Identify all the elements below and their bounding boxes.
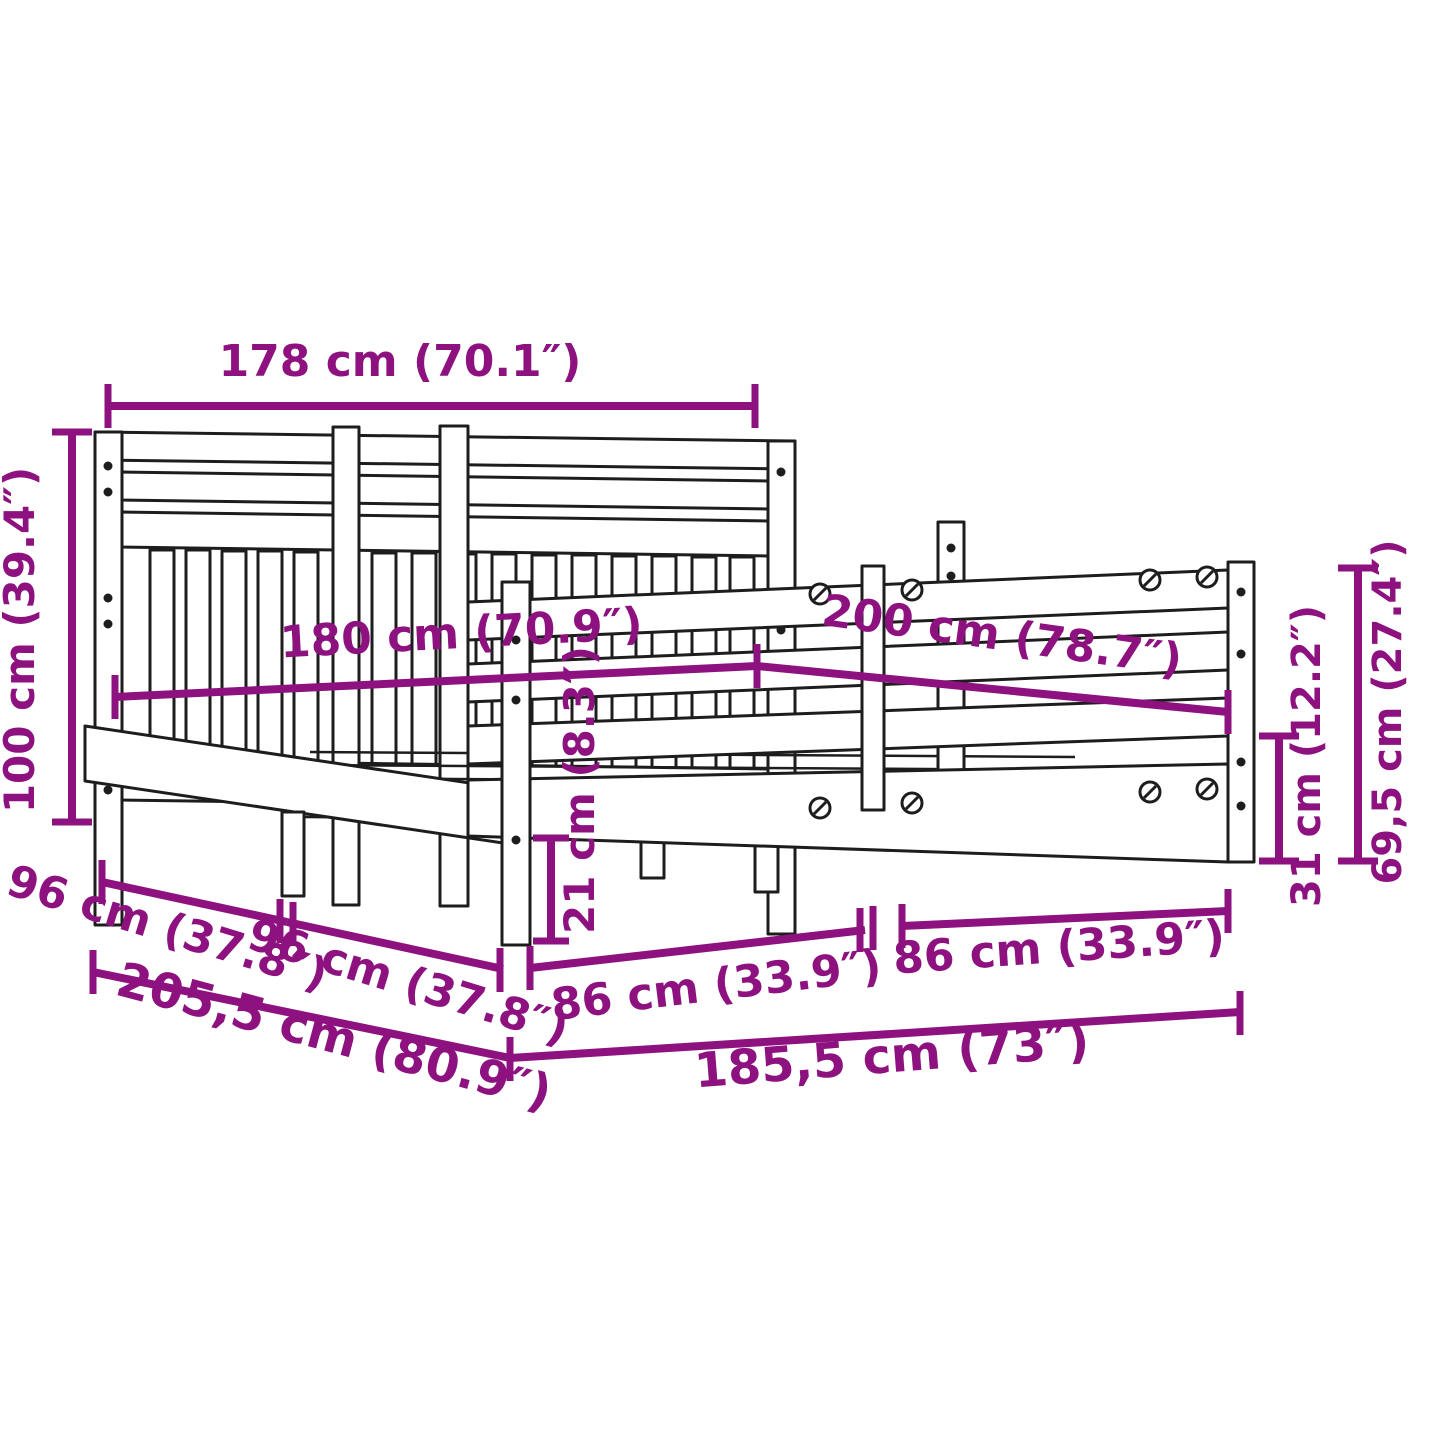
- dim-headboard-height: 100 cm (39.4″): [0, 432, 92, 822]
- headboard-width-label: 178 cm (70.1″): [219, 336, 582, 387]
- dim-side-rail-height: 31 cm (12.2″): [1259, 605, 1330, 907]
- dim-front-section-2: 86 cm (33.9″): [891, 889, 1228, 985]
- headboard-height-label: 100 cm (39.4″): [0, 467, 44, 813]
- end-height-label: 69,5 cm (27.4″): [1365, 539, 1411, 884]
- bed-dimension-diagram: 178 cm (70.1″) 100 cm (39.4″) 180 cm (70…: [0, 0, 1445, 1445]
- clearance-height-label: 21 cm (8.3″): [555, 646, 604, 934]
- total-width-label: 185,5 cm (73″): [692, 1013, 1091, 1100]
- side-rail-height-label: 31 cm (12.2″): [1284, 605, 1330, 907]
- dim-end-height: 69,5 cm (27.4″): [1338, 539, 1411, 884]
- diagram-canvas: 178 cm (70.1″) 100 cm (39.4″) 180 cm (70…: [0, 0, 1445, 1445]
- front-section-1-label: 86 cm (33.9″): [548, 940, 884, 1031]
- dim-headboard-width: 178 cm (70.1″): [108, 336, 755, 428]
